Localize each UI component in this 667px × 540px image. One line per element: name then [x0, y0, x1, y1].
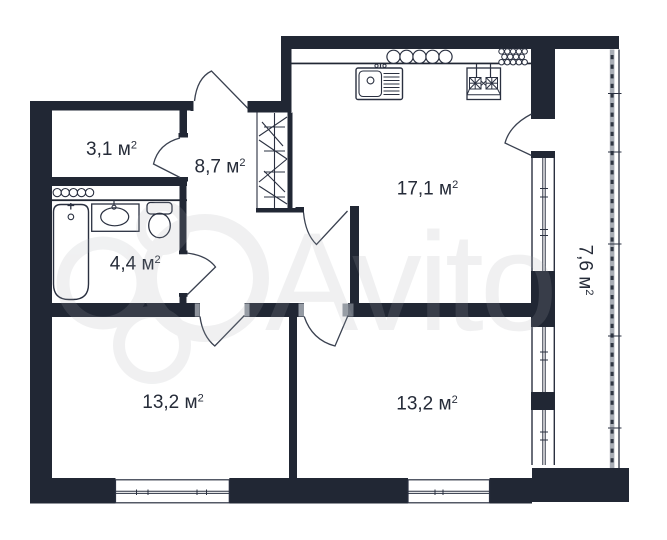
svg-text:17,1 м2: 17,1 м2: [397, 179, 458, 200]
svg-text:13,2 м2: 13,2 м2: [142, 392, 203, 413]
svg-text:Avito: Avito: [265, 203, 554, 360]
svg-text:3,1 м2: 3,1 м2: [86, 139, 137, 160]
svg-text:13,2 м2: 13,2 м2: [396, 394, 457, 415]
svg-text:8,7 м2: 8,7 м2: [195, 157, 246, 178]
svg-text:7,6 м2: 7,6 м2: [575, 245, 596, 296]
